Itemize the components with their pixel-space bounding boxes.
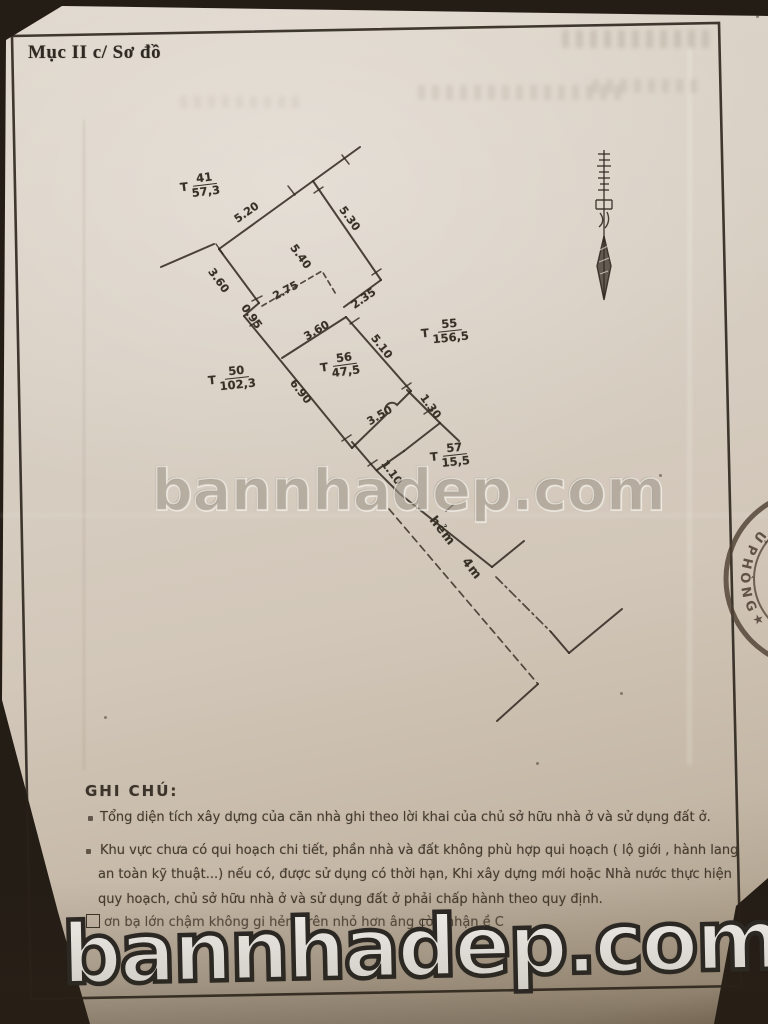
note-line: Khu vực chưa có qui hoạch chi tiết, phần…	[100, 843, 738, 858]
parcel-prefix: T	[207, 373, 216, 388]
north-arrow-icon	[596, 150, 612, 300]
note-line: an toàn kỹ thuật...) nếu có, được sử dụn…	[98, 867, 732, 882]
parcel-label-55: T 55156,5	[420, 316, 470, 348]
parcel-prefix: T	[319, 360, 329, 375]
section-title: Mục II c/ Sơ đồ	[28, 42, 161, 64]
parcel-prefix: T	[179, 180, 189, 195]
stamp-character: G	[741, 598, 759, 614]
stamp-character: P	[742, 542, 760, 557]
notes-heading: GHI CHÚ:	[85, 782, 178, 800]
parcel-prefix: T	[420, 326, 429, 341]
parcel-label-50: T 50102,3	[207, 363, 257, 395]
bullet-marker	[88, 816, 93, 821]
watermark-middle: bannhadep.com	[152, 458, 666, 524]
bullet-marker	[86, 849, 91, 854]
stamp-character: Ò	[737, 572, 753, 583]
parcel-boundary-lines	[161, 147, 622, 721]
stamp-character: N	[737, 585, 754, 599]
stamp-character: H	[738, 556, 755, 570]
parcel-label-56: T 5647,5	[318, 349, 361, 381]
watermark-bottom: bannhadep.com	[61, 890, 768, 1003]
parcel-label-41: T 4157,3	[179, 170, 221, 201]
scanned-document-photo: ỦPHÒNG★ Mục II c/ Sơ đồ 5.20 5.30 5.40 3…	[0, 0, 768, 1024]
note-line: Tổng diện tích xây dựng của căn nhà ghi …	[100, 810, 711, 825]
